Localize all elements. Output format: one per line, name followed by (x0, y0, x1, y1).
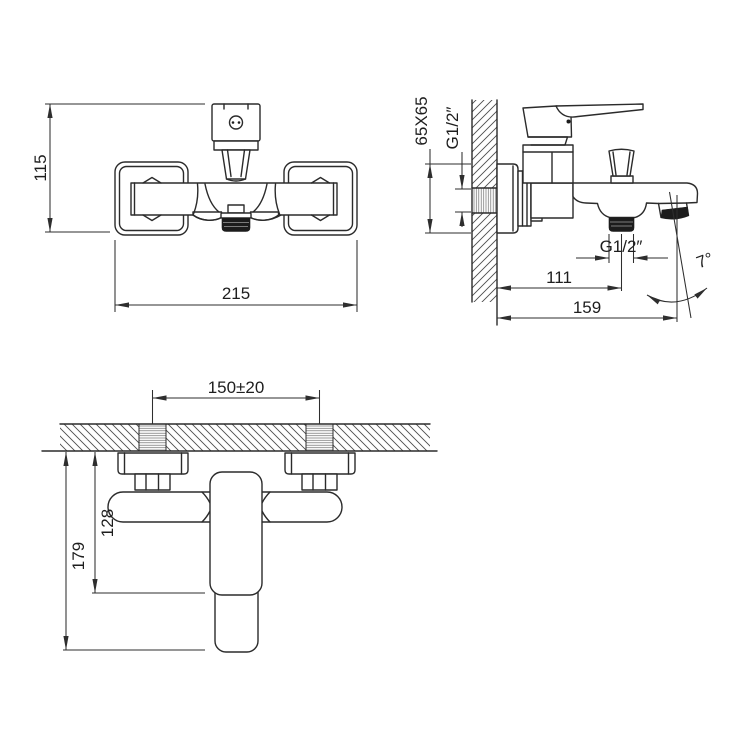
dim-label-inlet-spacing: 150±20 (208, 378, 265, 397)
escutcheon-right-top (285, 453, 355, 474)
escutcheon-left-top (118, 453, 188, 474)
dim-label-total-length: 179 (69, 542, 88, 570)
top-view: 150±20 128 179 (42, 378, 437, 652)
escutcheon-side (497, 164, 518, 233)
dim-label-wall-thread: G1/2″ (443, 107, 462, 150)
dim-label-escutcheon-size: 65X65 (412, 96, 431, 145)
inlet-thread-right (306, 424, 333, 451)
dim-label-front-width: 215 (222, 284, 250, 303)
side-view: 65X65 G1/2″ G1/2″ 111 159 7° (412, 96, 716, 325)
dim-label-outlet-thread: G1/2″ (600, 237, 643, 256)
nut-left-top (135, 474, 170, 490)
front-view: 115 215 (31, 104, 357, 312)
mixer-body-top (210, 472, 262, 595)
mixer-body-side (523, 145, 573, 183)
shower-outlet-thread-front (222, 218, 250, 232)
hot-cold-indicator (230, 116, 243, 129)
dim-label-body-length: 128 (98, 509, 117, 537)
dim-label-front-height: 115 (31, 154, 50, 181)
dim-label-wall-to-outlet: 111 (546, 268, 572, 287)
hose-outlet-thread-side (609, 218, 634, 232)
technical-drawing-bath-mixer: 115 215 (0, 0, 750, 750)
inlet-thread-left (139, 424, 166, 451)
nut-right-top (302, 474, 337, 490)
dim-label-wall-to-spout-tip: 159 (573, 298, 601, 317)
handle-front (222, 150, 250, 179)
wall-thread (472, 188, 497, 213)
dim-label-spout-angle: 7° (694, 249, 716, 272)
wall-hatch-top (60, 424, 139, 451)
wall-hatch (472, 100, 497, 188)
